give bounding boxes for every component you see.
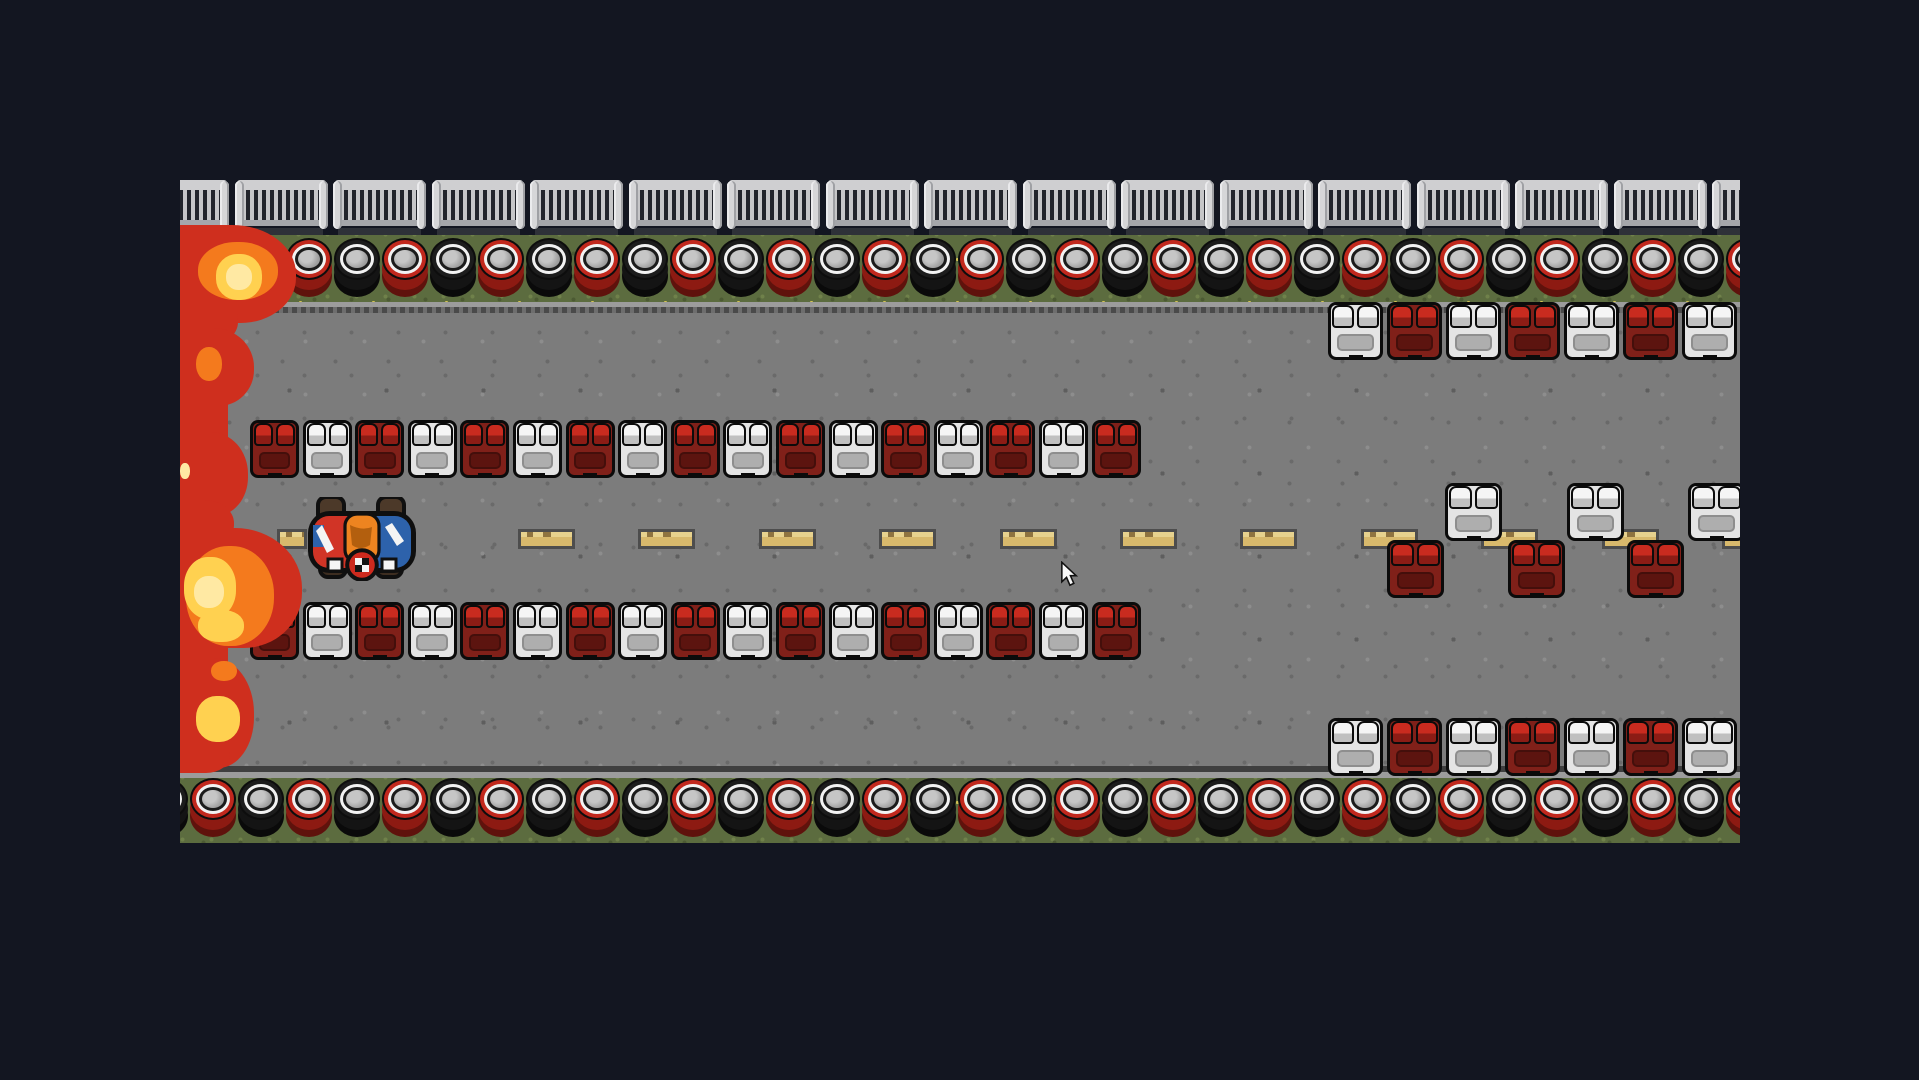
race-track-board[interactable]: [180, 180, 1740, 843]
flame-blob-orange: [211, 661, 237, 681]
flame-blob-yellow: [198, 610, 244, 642]
screen: { "scene": { "background": "#131621", "b…: [0, 0, 1919, 1080]
flame-blob-orange: [196, 347, 222, 381]
lava-flow: [180, 180, 1740, 843]
flame-blob-pale: [194, 576, 224, 608]
mouse-cursor: [1060, 561, 1078, 587]
flame-blob-yellow: [196, 696, 240, 742]
flame-blob-pale: [180, 463, 190, 479]
flame-blob-pale: [226, 264, 252, 290]
